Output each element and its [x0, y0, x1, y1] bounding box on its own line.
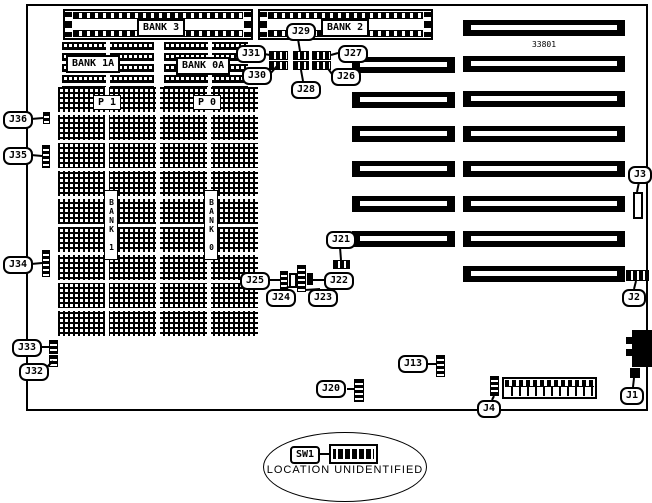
jumper-block: [289, 273, 297, 288]
jumper-block: [293, 61, 309, 70]
j24-label: J24: [266, 289, 296, 307]
expansion-slot: [352, 57, 455, 73]
bank1a-label: BANK 1A: [66, 55, 120, 73]
jumper-block: [312, 61, 331, 70]
expansion-slot: [352, 92, 455, 108]
jumper-block: [297, 265, 306, 292]
j25-label: J25: [240, 272, 270, 290]
bank1-vertical-label: BANK 1: [104, 190, 118, 260]
board-diagram: BANK 3 BANK 2 BANK 1A BANK 0A P 1 P 0 BA…: [0, 0, 652, 503]
simm-clip: [260, 12, 267, 37]
j4-label: J4: [477, 400, 501, 418]
j13-label: J13: [398, 355, 428, 373]
expansion-slot: [352, 161, 455, 177]
bank0-vertical-label: BANK 0: [204, 190, 218, 260]
j34-jumper: [42, 250, 50, 277]
j2-label: J2: [622, 289, 646, 307]
j35-jumper: [42, 145, 50, 168]
din-tab: [626, 337, 632, 344]
jumper-block: [280, 271, 288, 290]
j1-connector: [630, 368, 640, 378]
expansion-slot: [463, 56, 625, 72]
j21-label: J21: [326, 231, 356, 249]
din-tab: [626, 349, 632, 356]
expansion-slot: [463, 126, 625, 142]
simm-pin-row: [73, 12, 243, 19]
expansion-slot: [352, 231, 455, 247]
j23-label: J23: [308, 289, 338, 307]
expansion-slot: [463, 20, 625, 36]
j33-jumper: [49, 340, 58, 354]
keyboard-din-connector: [632, 330, 652, 367]
j2-connector: [626, 270, 649, 281]
jumper-block: [307, 273, 313, 285]
jumper-block: [269, 51, 288, 60]
j4-jumper: [490, 376, 499, 396]
part-number: 33801: [520, 40, 568, 50]
power-connector: [502, 377, 597, 399]
simm-pin-row: [268, 12, 423, 19]
expansion-slot: [463, 196, 625, 212]
j27-label: J27: [338, 45, 368, 63]
j13-jumper: [436, 355, 445, 377]
expansion-slot: [463, 91, 625, 107]
j33-label: J33: [12, 339, 42, 357]
bank3-label: BANK 3: [137, 19, 185, 37]
power-cell-row: [505, 386, 594, 396]
location-note: LOCATION UNIDENTIFIED: [266, 464, 424, 477]
bank2-label: BANK 2: [321, 19, 369, 37]
sw1-dip-switch: [329, 444, 378, 464]
simm-clip: [424, 12, 431, 37]
p1-label: P 1: [93, 95, 121, 110]
j32-jumper: [49, 355, 58, 367]
j36-jumper: [43, 112, 50, 124]
expansion-slot: [463, 231, 625, 247]
j35-label: J35: [3, 147, 33, 165]
j22-label: J22: [324, 272, 354, 290]
bank0a-label: BANK 0A: [176, 57, 230, 75]
j20-jumper: [354, 379, 364, 402]
j26-label: J26: [331, 68, 361, 86]
simm-clip: [65, 12, 72, 37]
j30-label: J30: [242, 67, 272, 85]
expansion-slot: [352, 126, 455, 142]
jumper-block: [269, 61, 288, 70]
p0-label: P 0: [193, 95, 221, 110]
j28-label: J28: [291, 81, 321, 99]
sw1-label: SW1: [290, 446, 320, 464]
j36-label: J36: [3, 111, 33, 129]
j20-label: J20: [316, 380, 346, 398]
j3-connector: [633, 192, 643, 219]
jumper-block: [312, 51, 331, 60]
j32-label: J32: [19, 363, 49, 381]
j34-label: J34: [3, 256, 33, 274]
simm-clip: [244, 12, 251, 37]
expansion-slot: [463, 161, 625, 177]
main-chip-array: [58, 87, 262, 337]
j31-label: J31: [236, 45, 266, 63]
j29-label: J29: [286, 23, 316, 41]
expansion-slot: [463, 266, 625, 282]
jumper-block: [293, 51, 309, 60]
j21-jumper: [333, 260, 350, 269]
j1-label: J1: [620, 387, 644, 405]
j3-label: J3: [628, 166, 652, 184]
expansion-slot: [352, 196, 455, 212]
